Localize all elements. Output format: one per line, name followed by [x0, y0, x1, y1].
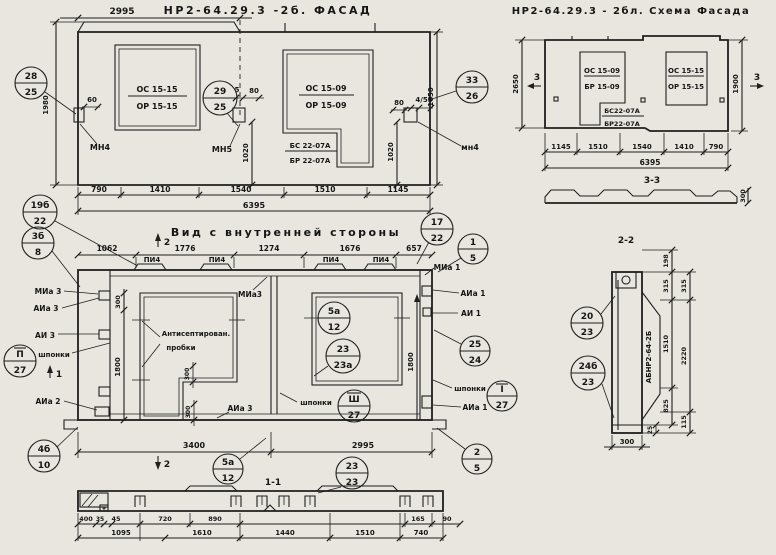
dim-label: 1980: [42, 95, 50, 115]
section-1-1-title: 1-1: [265, 478, 281, 488]
dim-label: 400: [79, 515, 93, 523]
dim-label: 2995: [109, 7, 134, 17]
dim-label: 6395: [243, 201, 266, 210]
dim-label: 300: [620, 438, 635, 446]
dim-label: 1020: [242, 143, 250, 163]
callout-P-27: П 27: [4, 345, 36, 377]
svg-text:23: 23: [582, 378, 595, 388]
anchor-label: мн4: [461, 143, 479, 152]
dim-label: 1540: [231, 185, 252, 194]
dim-label: 1510: [315, 185, 336, 194]
dim-label: 80: [249, 87, 259, 95]
svg-text:17: 17: [431, 218, 444, 228]
dim-label: 198: [662, 254, 670, 268]
dim-label: 1650: [427, 87, 435, 107]
section-mark: 2: [164, 460, 170, 470]
part-label: шпонки: [38, 351, 70, 359]
part-label: АИа 1: [463, 403, 488, 412]
svg-text:19б: 19б: [31, 200, 50, 211]
svg-text:27: 27: [496, 401, 509, 411]
svg-text:26: 26: [466, 92, 479, 102]
dim-label: 1410: [150, 185, 171, 194]
section-mark: 3: [754, 73, 760, 83]
window-mark: ОР 15-09: [305, 101, 346, 110]
dim-label: 300: [184, 368, 191, 381]
svg-text:5: 5: [470, 254, 476, 264]
svg-text:22: 22: [431, 234, 444, 244]
dim-label: 315: [680, 279, 688, 293]
block-mark: БР22-07А: [604, 120, 640, 128]
svg-text:23: 23: [346, 478, 359, 488]
panel-mark: АБНР2-64-2Б: [645, 331, 653, 383]
svg-text:23: 23: [346, 462, 359, 472]
dim-label: 1800: [114, 357, 122, 377]
svg-text:23: 23: [337, 345, 350, 355]
callout-33-26: 33 26: [432, 71, 488, 103]
anchor-plate: [74, 108, 84, 122]
dim-label: 1440: [275, 529, 295, 537]
anchor-label: МН4: [90, 143, 111, 152]
block-mark: БС 22-07А: [290, 142, 331, 150]
dim-label: 25: [647, 426, 654, 434]
callout-I-27: I 27: [487, 381, 517, 411]
dim-label: 115: [680, 415, 688, 429]
svg-text:24: 24: [469, 356, 482, 366]
dim-label: 1610: [192, 529, 212, 537]
dim-label: 6395: [640, 158, 661, 167]
dim-label: 1676: [340, 244, 361, 253]
svg-text:2: 2: [474, 448, 480, 458]
dim-label: 825: [662, 399, 670, 413]
dim-label: 1800: [407, 352, 415, 372]
dim-label: 165: [411, 515, 425, 523]
window-mark: ОР 15-15: [668, 83, 704, 91]
dim-label: 657: [406, 244, 422, 253]
anchor-label: МН5: [212, 145, 233, 154]
svg-text:27: 27: [348, 411, 361, 421]
svg-text:5: 5: [474, 464, 480, 474]
svg-text:10: 10: [38, 461, 51, 471]
callout-23-23a: 23 23а: [314, 339, 360, 376]
section-3-3-profile: 300: [545, 187, 751, 206]
dim-label: 60: [87, 96, 97, 104]
section-mark: 1: [56, 370, 62, 380]
dim-label: 1510: [588, 143, 608, 151]
svg-text:23: 23: [581, 328, 594, 338]
facade-title: НР2-64.29.3 -2б. ФАСАД: [164, 4, 373, 17]
inner-opening-left: [140, 293, 237, 420]
part-label: шпонки: [300, 399, 332, 407]
plate-label: ПИ4: [209, 256, 226, 264]
callout-25-24: 25 24: [434, 330, 490, 366]
window-mark: ОС 15-15: [136, 85, 177, 94]
svg-text:12: 12: [222, 474, 235, 484]
svg-text:29: 29: [214, 87, 227, 97]
svg-text:8: 8: [35, 248, 41, 258]
svg-text:Ш: Ш: [348, 395, 359, 405]
plate-label: ПИ4: [373, 256, 390, 264]
callout-5a-12b: 5а 12: [213, 438, 266, 484]
callout-24b-23: 24б 23: [571, 356, 614, 418]
part-label: АИ 1: [461, 309, 481, 318]
plate-label: ПИ4: [144, 256, 161, 264]
svg-text:28: 28: [25, 72, 38, 82]
svg-text:3б: 3б: [32, 231, 45, 242]
dim-label: 2995: [352, 441, 375, 450]
dim-label: 1900: [732, 74, 740, 94]
part-label: АИа 2: [36, 397, 61, 406]
part-label: шпонки: [454, 385, 486, 393]
svg-text:25: 25: [214, 103, 227, 113]
inner-view: Вид с внутренней стороны 2 1062 1776 127…: [34, 226, 488, 470]
blueprint-svg: НР2-64.29.3 -2б. ФАСАД 2995 ОС 15-15 ОР …: [0, 0, 776, 555]
part-label: АИа 3: [228, 404, 253, 413]
svg-text:25: 25: [469, 340, 482, 350]
section-mark: 2: [164, 238, 170, 248]
schema-title: НР2-64.29.3 - 2бл. Схема Фасада: [512, 5, 751, 17]
dim-label: 1145: [551, 143, 571, 151]
dim-label: 790: [709, 143, 724, 151]
section-body: [612, 272, 642, 433]
dim-label: 1510: [662, 334, 670, 353]
svg-text:22: 22: [34, 217, 47, 227]
callout-Sh-27: Ш 27: [338, 390, 370, 422]
svg-text:23а: 23а: [334, 361, 353, 371]
facade-view: НР2-64.29.3 -2б. ФАСАД 2995 ОС 15-15 ОР …: [42, 4, 479, 215]
part-label: МИа 1: [434, 263, 461, 272]
callout-20-23: 20 23: [571, 296, 615, 339]
profile-outline: [78, 491, 443, 511]
dim-label: 90: [442, 515, 452, 523]
dim-label: 300: [185, 406, 192, 419]
svg-text:20: 20: [581, 312, 594, 322]
window-mark: ОР 15-15: [136, 102, 177, 111]
svg-text:12: 12: [328, 323, 341, 333]
dim-label: 790: [91, 185, 107, 194]
block-mark: БС22-07А: [604, 107, 640, 115]
svg-text:П: П: [16, 350, 24, 360]
dim-label: 890: [208, 515, 222, 523]
dim-label: 1540: [632, 143, 652, 151]
svg-text:4б: 4б: [38, 444, 51, 455]
schema-view: НР2-64.29.3 - 2бл. Схема Фасада ОС 15-09…: [512, 5, 764, 186]
dim-label: 80: [394, 99, 404, 107]
section-mark: 3: [534, 73, 540, 83]
callouts: 28 25 29 25 33 26 19б 22 3б 8 17 22 1 5: [4, 67, 615, 493]
dim-label: 300: [114, 295, 122, 309]
part-label: МИа 3: [35, 287, 62, 296]
dim-label: 720: [158, 515, 172, 523]
dim-label: 300: [739, 189, 747, 203]
part-label: МИа3: [238, 290, 262, 299]
window-mark: ОС 15-15: [668, 67, 704, 75]
window-mark: ОС 15-09: [305, 84, 346, 93]
callout-4b-10: 4б 10: [28, 427, 78, 472]
dim-label: 2220: [680, 346, 688, 365]
dim-label: 1274: [259, 244, 280, 253]
dim-label: 35: [96, 516, 104, 523]
dim-label: 3400: [183, 441, 206, 450]
window-mark: ОС 15-09: [584, 67, 620, 75]
dim-label: 1020: [387, 142, 395, 162]
part-label: АИ 3: [35, 331, 55, 340]
callout-23-23: 23 23: [318, 457, 368, 493]
part-label: АИа 1: [461, 289, 486, 298]
svg-text:24б: 24б: [579, 361, 598, 372]
callout-2-5: 2 5: [437, 428, 492, 474]
dim-label: 740: [414, 529, 429, 537]
inner-opening-right: [312, 293, 402, 385]
dim-label: 1145: [388, 185, 409, 194]
dim-label: 2650: [512, 74, 520, 94]
svg-text:25: 25: [25, 88, 38, 98]
dim-label: 1095: [111, 529, 131, 537]
callout-17-22: 17 22: [417, 213, 453, 264]
svg-text:5а: 5а: [222, 458, 234, 468]
svg-text:I: I: [500, 385, 503, 395]
dim-label: 45: [111, 515, 121, 523]
section-1-1: 1-1 400 35 45 720 890 165 90 1095 1610 1…: [75, 478, 463, 541]
svg-text:1: 1: [470, 238, 476, 248]
callout-29-25: 29 25: [203, 81, 238, 126]
part-label: АИа 3: [34, 304, 59, 313]
callout-3b-8: 3б 8: [22, 227, 80, 287]
anchor-plate: [233, 108, 245, 122]
drawing-sheet: НР2-64.29.3 -2б. ФАСАД 2995 ОС 15-15 ОР …: [0, 0, 776, 555]
dim-label: 1510: [355, 529, 375, 537]
callout-5a-12: 5а 12: [318, 302, 350, 334]
svg-text:27: 27: [14, 366, 27, 376]
svg-text:33: 33: [466, 76, 479, 86]
facade-panel-outline: [78, 32, 430, 185]
note-text: Антисептирован.: [162, 330, 230, 338]
dim-label: 315: [662, 279, 670, 293]
plate-label: ПИ4: [323, 256, 340, 264]
svg-text:5а: 5а: [328, 307, 340, 317]
section-2-2: 2-2 АБНР2-64-2Б 198 315 1510 825 315 222…: [604, 236, 696, 450]
dim-label: 1776: [175, 244, 196, 253]
dim-label: 1410: [674, 143, 694, 151]
schema-window-2: [666, 52, 707, 105]
note-text: пробки: [166, 344, 195, 352]
section-3-3-title: 3-3: [644, 176, 660, 186]
block-mark: БР 22-07А: [290, 157, 331, 165]
window-mark: БР 15-09: [584, 83, 619, 91]
inner-title: Вид с внутренней стороны: [171, 226, 401, 239]
section-2-2-title: 2-2: [618, 236, 634, 246]
